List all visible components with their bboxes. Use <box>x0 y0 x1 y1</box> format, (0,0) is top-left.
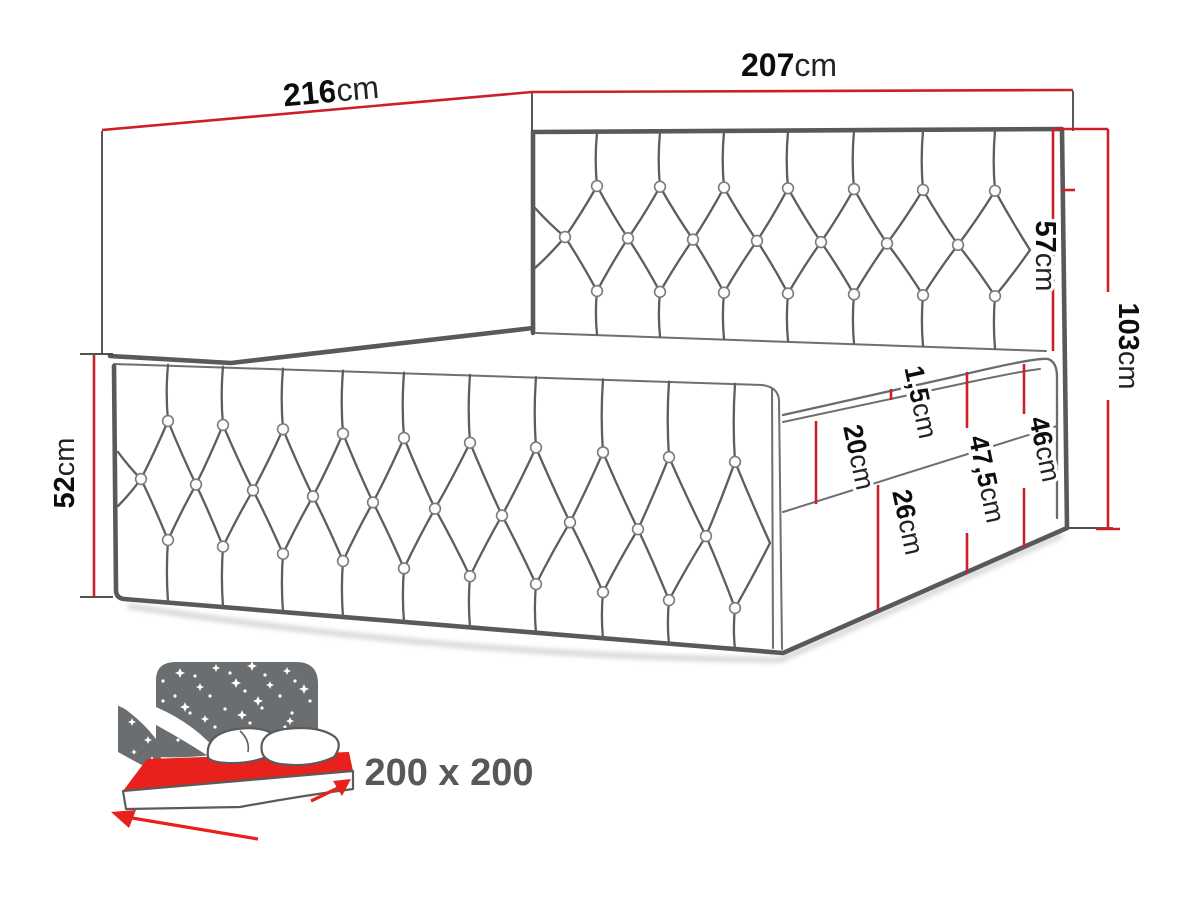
bed-shadow <box>128 535 1062 660</box>
label-57: 57cm <box>1029 221 1061 292</box>
bed-dimension-diagram: 216cm 207cm 57cm 103cm 52cm 1,5cm 20cm 2… <box>0 0 1200 900</box>
diagram-canvas: 216cm 207cm 57cm 103cm 52cm 1,5cm 20cm 2… <box>0 0 1200 900</box>
label-52: 52cm <box>49 438 81 509</box>
bed-size-icon <box>100 661 353 839</box>
label-1_5: 1,5cm <box>898 363 943 441</box>
label-width: 207cm <box>741 47 837 83</box>
dim-line-width <box>532 90 1073 92</box>
dimension-lines <box>94 90 1120 611</box>
size-label: 200 x 200 <box>364 752 533 794</box>
label-46: 46cm <box>1023 414 1066 485</box>
label-26: 26cm <box>886 487 929 558</box>
headboard-tufting <box>535 130 1030 348</box>
icon-pillow-right <box>261 728 338 765</box>
icon-arrow-front <box>111 810 258 839</box>
label-20: 20cm <box>837 422 880 493</box>
label-103: 103cm <box>1112 302 1144 389</box>
label-47_5: 47,5cm <box>963 433 1011 526</box>
